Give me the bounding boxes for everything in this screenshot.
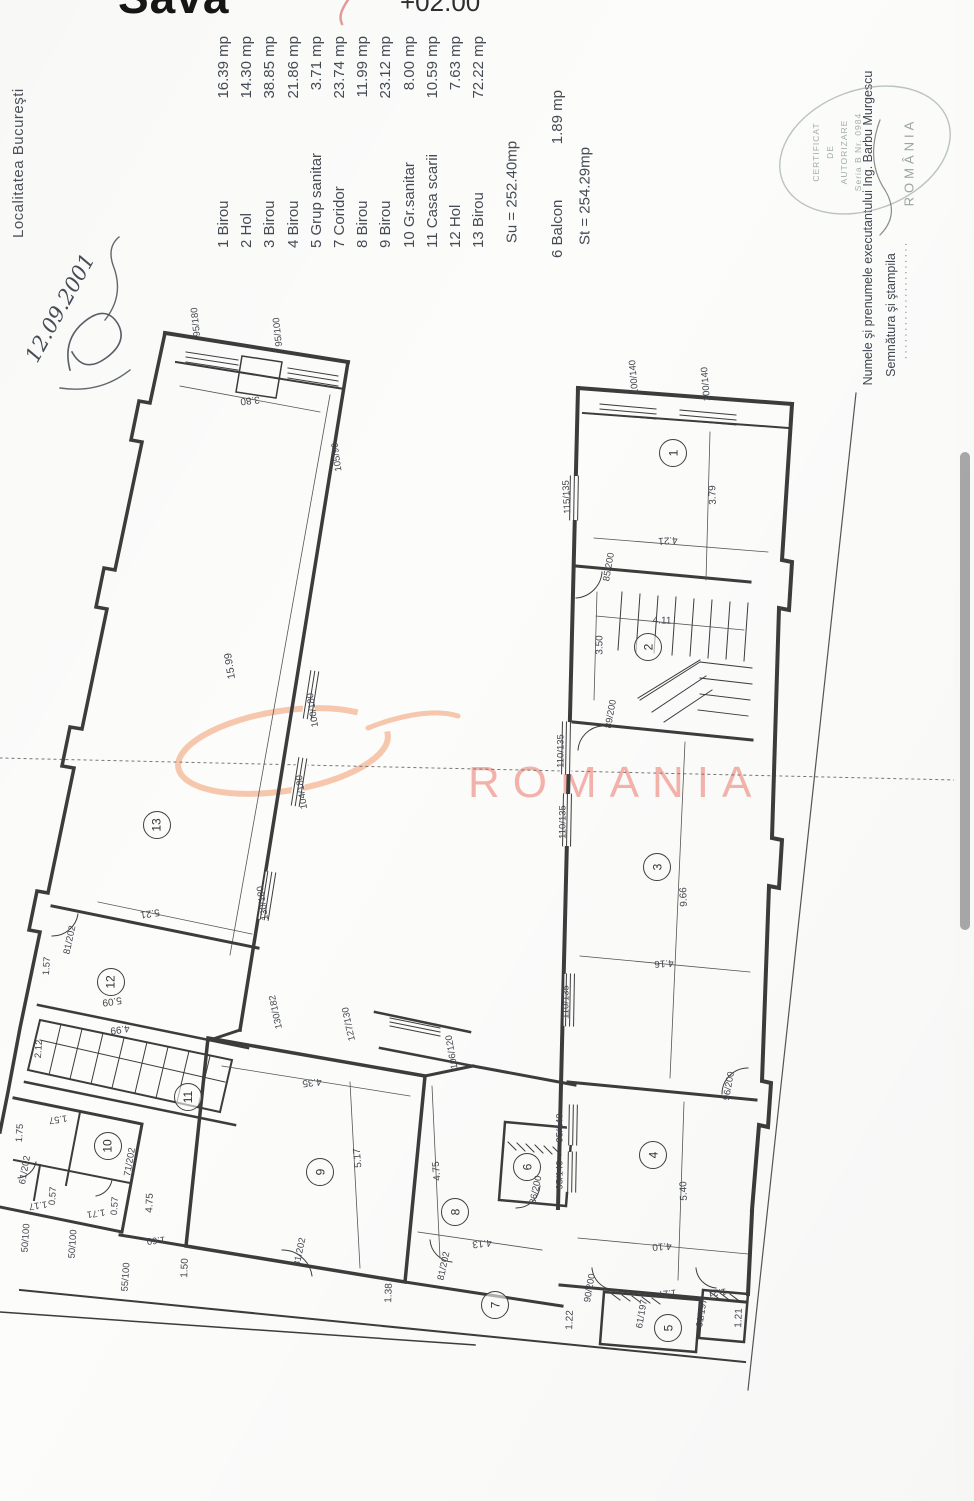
room-number-3: 3 xyxy=(643,853,671,881)
dim-label: 3.80 xyxy=(240,394,261,407)
dim-label: 1.38 xyxy=(383,1283,395,1303)
room-number-label: 1 xyxy=(666,450,680,457)
dim-label: 4.75 xyxy=(144,1193,156,1213)
dim-label: 1.50 xyxy=(179,1258,191,1278)
room-number-11: 11 xyxy=(174,1083,202,1111)
room-number-label: 11 xyxy=(181,1091,195,1103)
room-number-8: 8 xyxy=(441,1198,469,1226)
room-number-label: 6 xyxy=(520,1164,534,1171)
room-number-label: 13 xyxy=(150,818,164,831)
floor-plan-drawing xyxy=(0,0,974,1501)
dim-label: 3.79 xyxy=(707,485,719,505)
dim-label: 1.27 xyxy=(657,1287,677,1300)
room-number-label: 3 xyxy=(650,864,664,871)
room-number-9: 9 xyxy=(306,1158,334,1186)
dim-label: 3.50 xyxy=(595,635,606,654)
room-number-4: 4 xyxy=(639,1141,667,1169)
dim-label: 4.13 xyxy=(472,1237,493,1250)
dim-label: 50/100 xyxy=(66,1229,79,1259)
room-number-label: 9 xyxy=(313,1169,327,1176)
dim-label: 50/100 xyxy=(19,1223,32,1253)
dim-label: 2.12 xyxy=(33,1039,45,1058)
dim-label: 0.57 xyxy=(47,1186,59,1205)
dim-label: 1.21 xyxy=(733,1308,745,1328)
dim-label: 5.40 xyxy=(678,1181,690,1201)
dim-label: 1.57 xyxy=(41,956,53,975)
room-number-label: 4 xyxy=(646,1152,660,1159)
signature-scribble-icon xyxy=(68,313,121,370)
dim-label: 4.10 xyxy=(652,1240,672,1252)
dim-label: 1.22 xyxy=(564,1310,576,1330)
dim-label: 95/140 xyxy=(555,1113,566,1142)
dim-label: 95/140 xyxy=(555,1160,566,1189)
dim-label: 1.21 xyxy=(707,1286,727,1299)
watermark-swoosh-icon xyxy=(172,695,394,807)
stamp-ellipse-icon xyxy=(762,64,968,237)
dim-label: 4.21 xyxy=(658,534,678,546)
room-number-5: 5 xyxy=(654,1314,682,1342)
dim-label: 0.57 xyxy=(109,1196,121,1215)
scrollbar-thumb[interactable] xyxy=(960,452,970,930)
dim-label: 9.66 xyxy=(678,887,690,907)
dim-label: 5.17 xyxy=(352,1148,365,1168)
dim-label: 55/100 xyxy=(119,1262,132,1292)
dim-label: 1.75 xyxy=(14,1123,26,1142)
dim-label: 4.11 xyxy=(652,615,671,627)
room-number-label: 2 xyxy=(641,644,655,651)
room-number-label: 7 xyxy=(488,1302,502,1309)
dim-label: 4.35 xyxy=(302,1076,323,1089)
room-number-2: 2 xyxy=(634,633,662,661)
room-number-7: 7 xyxy=(481,1291,509,1319)
room-number-label: 8 xyxy=(448,1209,462,1216)
dim-label: 110/135 xyxy=(558,805,569,839)
room-number-12: 12 xyxy=(97,968,125,996)
scrollbar-track[interactable] xyxy=(954,0,974,1501)
room-number-10: 10 xyxy=(94,1132,122,1160)
dim-label: 115/135 xyxy=(561,480,574,514)
dim-label: 4.75 xyxy=(431,1161,444,1181)
scanned-floor-plan-page: Sava +02.00 Localitatea Bucureşti 12.09.… xyxy=(0,0,974,1501)
room-number-label: 10 xyxy=(101,1139,115,1152)
room-number-label: 12 xyxy=(104,975,118,988)
room-number-13: 13 xyxy=(143,811,171,839)
dim-label: 1.60 xyxy=(146,1234,166,1247)
room-number-1: 1 xyxy=(659,439,687,467)
dim-label: 4.16 xyxy=(654,957,674,969)
red-pen-mark-icon xyxy=(340,0,352,24)
dim-label: 110/135 xyxy=(561,985,572,1019)
dim-label: 110/135 xyxy=(556,734,567,768)
room-number-label: 5 xyxy=(661,1325,675,1332)
